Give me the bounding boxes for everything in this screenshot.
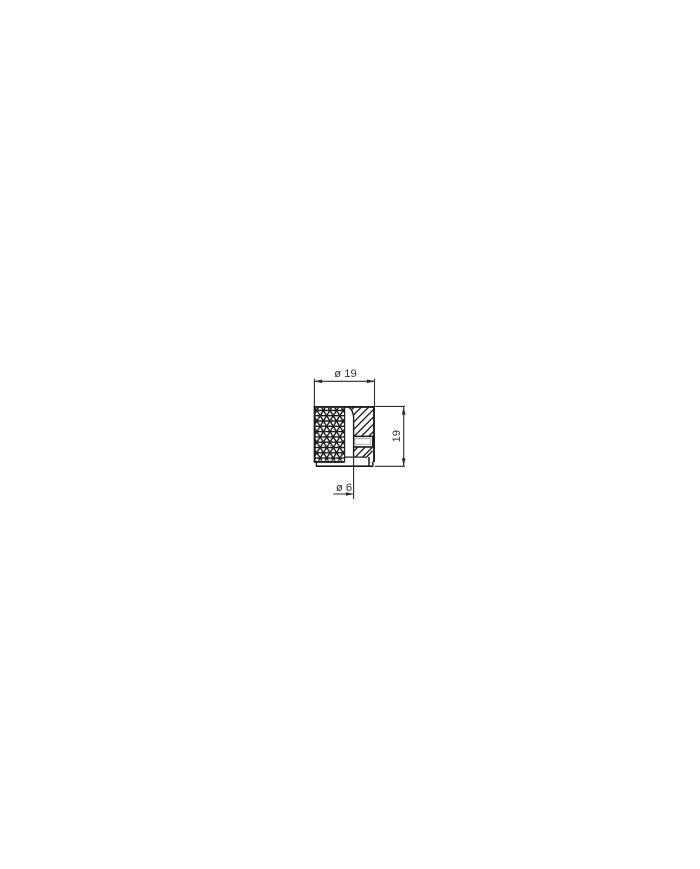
svg-text:ø 19: ø 19 bbox=[334, 368, 356, 380]
svg-text:ø 6: ø 6 bbox=[336, 482, 352, 494]
svg-text:19: 19 bbox=[391, 430, 403, 442]
